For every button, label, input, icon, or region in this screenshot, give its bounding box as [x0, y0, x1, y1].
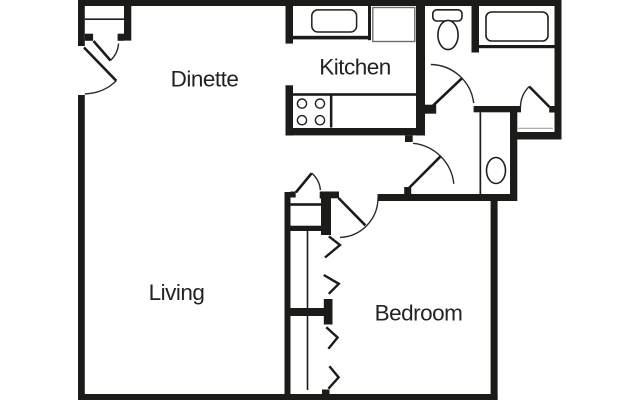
svg-text:Living: Living — [149, 280, 205, 305]
svg-text:Kitchen: Kitchen — [319, 55, 391, 80]
svg-text:Dinette: Dinette — [171, 67, 239, 92]
svg-text:Bedroom: Bedroom — [375, 301, 463, 326]
